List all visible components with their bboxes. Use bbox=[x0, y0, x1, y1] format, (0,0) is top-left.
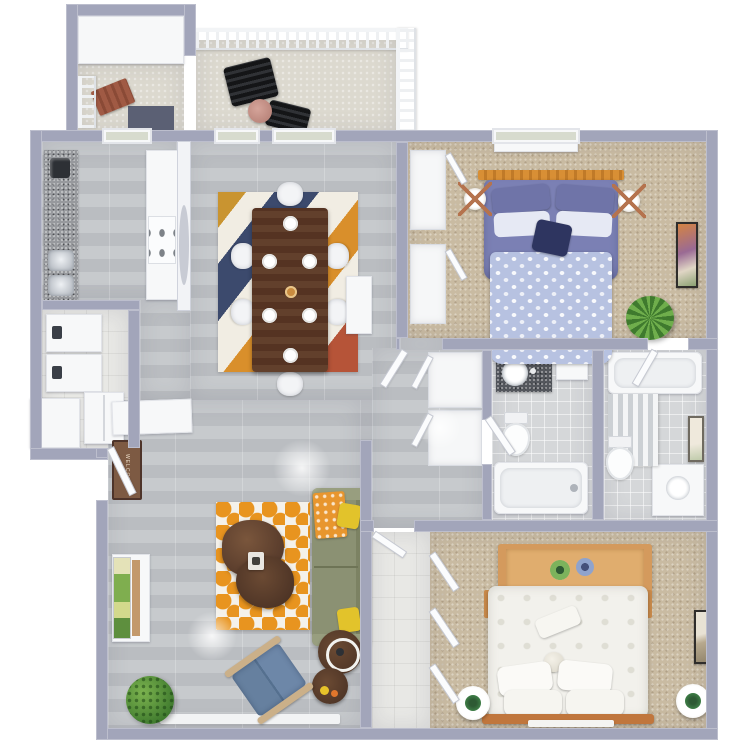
kitchen-back-door bbox=[102, 128, 152, 144]
dining-chair bbox=[277, 372, 303, 396]
leaning-artwork bbox=[114, 558, 130, 638]
wall-bedroom1-south-a bbox=[396, 338, 400, 350]
hall-opening-floor bbox=[360, 400, 372, 440]
bath1-faucet bbox=[530, 368, 536, 374]
bedroom1-window bbox=[492, 128, 580, 144]
nesting-table-large bbox=[318, 630, 362, 674]
bath2-bathtub bbox=[608, 352, 702, 394]
wall-bedroom1-south-c bbox=[688, 338, 718, 350]
coffee-table-blob bbox=[236, 556, 294, 608]
bedroom1-plant bbox=[626, 296, 674, 340]
wall-laundry-right bbox=[128, 310, 140, 448]
dining-chair bbox=[277, 182, 303, 206]
entry-tower-wall-left bbox=[66, 4, 78, 134]
bed2 bbox=[488, 586, 648, 726]
bed2-pillow bbox=[566, 690, 624, 716]
place-setting-plate bbox=[262, 254, 277, 269]
entry-stair-railing bbox=[78, 76, 96, 128]
laundry-washer bbox=[46, 314, 102, 352]
dresser-plate-green bbox=[550, 560, 570, 580]
dryer-door bbox=[52, 366, 62, 379]
place-setting-plate bbox=[302, 308, 317, 323]
wall-hall-bath1-b bbox=[482, 464, 492, 520]
bedroom1-door-threshold bbox=[400, 338, 442, 350]
bath1-bathtub bbox=[494, 462, 588, 514]
wall-bath-bedroom2-b bbox=[414, 520, 718, 532]
table-tray-ring bbox=[326, 638, 360, 672]
door-glass bbox=[106, 132, 148, 140]
bath2-sink bbox=[666, 476, 690, 500]
hall-linen-closet bbox=[428, 352, 482, 408]
bedroom1-wall-art bbox=[676, 222, 698, 288]
dining-chair bbox=[325, 243, 349, 269]
tub-basin bbox=[614, 358, 696, 388]
place-setting-plate bbox=[302, 254, 317, 269]
sink-basin bbox=[48, 275, 74, 296]
balcony-railing-top bbox=[196, 28, 408, 50]
sofa-pillow-yellow bbox=[336, 502, 362, 529]
wall-bedroom1-south-b bbox=[442, 338, 648, 350]
table-centerpiece bbox=[285, 286, 297, 298]
entry-tower-roof bbox=[78, 16, 184, 64]
dining-window bbox=[272, 128, 336, 144]
wall-laundry-top bbox=[42, 300, 140, 310]
bedroom2-nightstand bbox=[676, 684, 710, 718]
wall-bath1-bath2 bbox=[592, 350, 604, 520]
console-wood-panel bbox=[132, 560, 140, 636]
wall-living-bedroom2 bbox=[360, 440, 372, 728]
living-plant bbox=[126, 676, 174, 724]
bedroom1-lamp bbox=[618, 190, 640, 212]
kitchen-dining-oval-cutout bbox=[179, 205, 189, 285]
coat-closet-roof bbox=[111, 399, 192, 436]
wall-hall-bath1-a bbox=[482, 350, 492, 420]
window-glass bbox=[496, 132, 576, 140]
bedroom1-lamp bbox=[464, 188, 486, 210]
bed1-headboard bbox=[478, 170, 624, 180]
tub-faucet bbox=[570, 484, 578, 492]
entry-tower-wall-top bbox=[66, 4, 196, 16]
kitchen-corridor-floor bbox=[140, 300, 190, 400]
tray-item bbox=[252, 557, 260, 565]
sink-basin bbox=[48, 250, 74, 271]
kitchen-stove bbox=[148, 216, 176, 264]
table-item-orange bbox=[331, 690, 338, 697]
balcony-side-table bbox=[248, 99, 272, 123]
sofa-seat-seam bbox=[314, 566, 358, 568]
window-glass bbox=[276, 132, 332, 140]
wall-dining-bedroom1 bbox=[396, 142, 408, 338]
floor-plan-3d-render: WELCOME bbox=[0, 0, 750, 750]
place-setting-plate bbox=[283, 348, 298, 363]
bed2-pillow bbox=[504, 690, 562, 716]
place-setting-plate bbox=[262, 308, 277, 323]
door-glass bbox=[218, 132, 256, 140]
washer-door bbox=[52, 326, 62, 339]
laundry-dryer bbox=[46, 354, 102, 392]
place-setting-plate bbox=[283, 216, 298, 231]
dresser-plate-blue bbox=[576, 558, 594, 576]
bedroom2-bench bbox=[528, 720, 614, 727]
wall-exterior-bottom bbox=[96, 728, 718, 740]
hall-linen-closet bbox=[428, 410, 482, 466]
wall-exterior-left-upper bbox=[30, 130, 42, 460]
entry-tower-wall-right bbox=[184, 4, 196, 56]
living-baseboard-highlight bbox=[160, 714, 340, 724]
kitchen-double-sink bbox=[48, 250, 74, 296]
wall-exterior-left-lower bbox=[96, 500, 108, 740]
kitchen-coffee-maker bbox=[50, 158, 70, 178]
wall-exterior-right bbox=[706, 130, 718, 740]
bed1-pillow-purple bbox=[555, 184, 615, 215]
dining-balcony-door bbox=[214, 128, 260, 144]
bedroom1-closet bbox=[410, 244, 446, 324]
tray-item bbox=[336, 648, 344, 656]
nightstand-plant-tray bbox=[685, 693, 701, 709]
bedroom2-closet-floor bbox=[372, 532, 430, 728]
table-item-yellow bbox=[320, 686, 329, 695]
bath2-toilet bbox=[606, 436, 634, 480]
bath2-wall-art bbox=[688, 416, 704, 462]
wall-bath-bedroom2-a bbox=[360, 520, 374, 532]
bath2-vanity bbox=[652, 464, 704, 516]
coffee-table-tray bbox=[248, 552, 264, 570]
dining-console bbox=[346, 276, 372, 334]
nesting-table-small bbox=[312, 668, 348, 704]
nightstand-plant-tray bbox=[465, 695, 481, 711]
bedroom1-closet bbox=[410, 150, 446, 230]
balcony-railing-right bbox=[396, 28, 416, 132]
bedroom2-nightstand bbox=[456, 686, 490, 720]
fridge-door-split bbox=[103, 395, 105, 441]
wall-entry-jamb bbox=[96, 448, 108, 458]
media-console bbox=[112, 554, 150, 642]
